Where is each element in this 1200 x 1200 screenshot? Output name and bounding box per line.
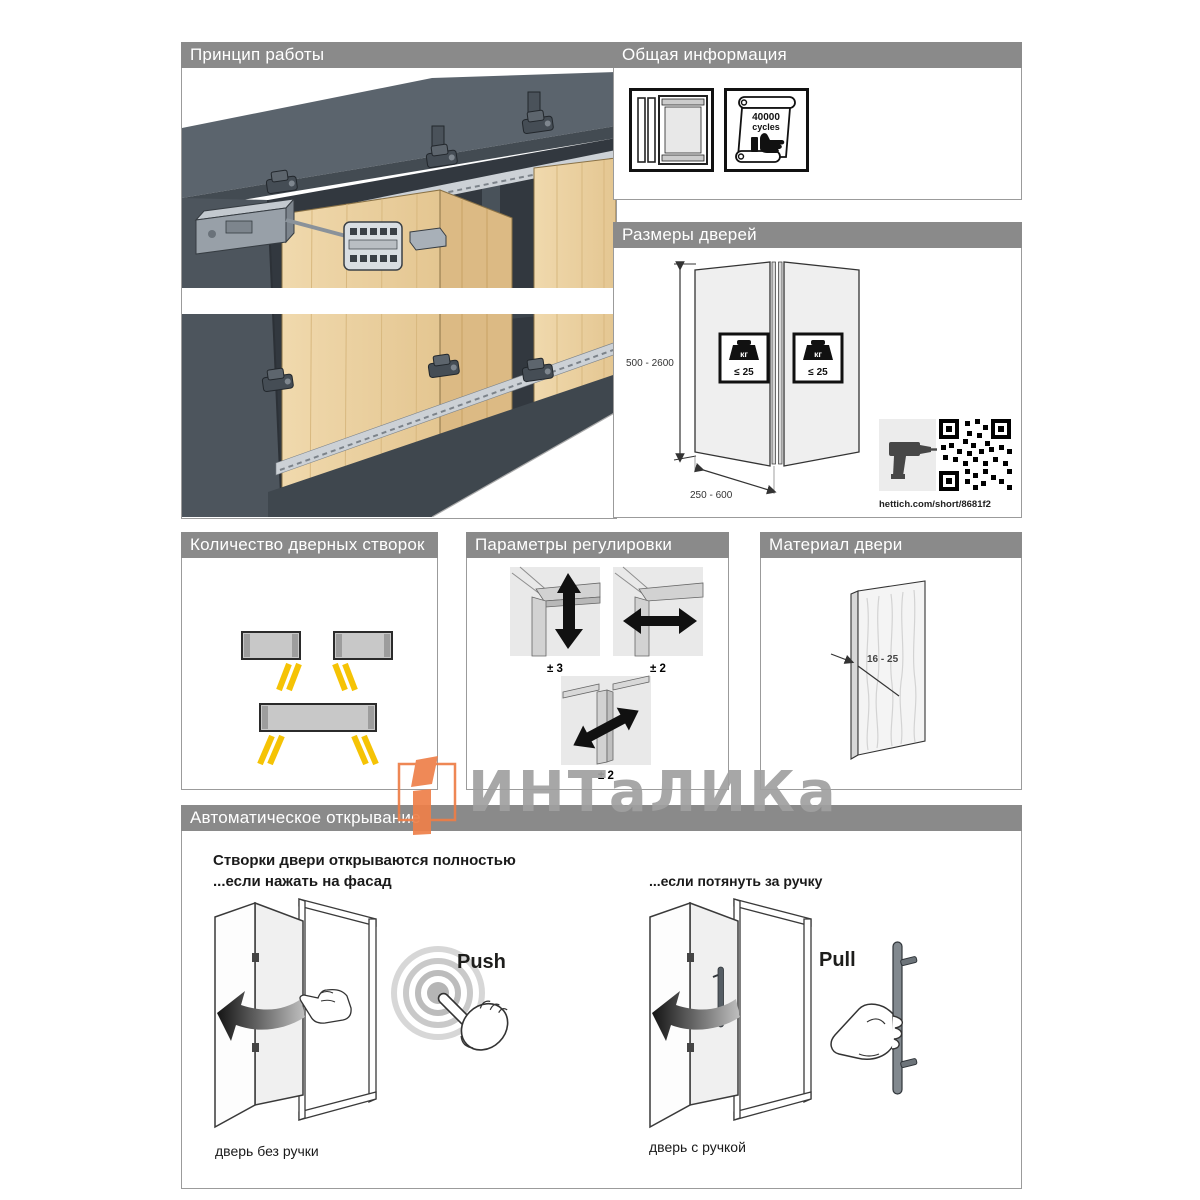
qr-code bbox=[937, 417, 1013, 493]
panel-leaves-title: Количество дверных створок bbox=[181, 532, 438, 558]
connector-icon bbox=[410, 228, 446, 250]
panel-material-title: Материал двери bbox=[760, 532, 1022, 558]
adjust-tilt-value: ± 2 bbox=[598, 770, 614, 782]
opening-headline-line1: Створки двери открываются полностью bbox=[213, 850, 516, 871]
panel-opening: Автоматическое открывание Створки двери … bbox=[181, 805, 1022, 1189]
touch-hand-icon bbox=[300, 990, 351, 1024]
door-dimensions-diagram: кг ≤ 25 кг ≤ 25 500 - 2600 bbox=[614, 248, 1021, 516]
door-thickness-range: 16 - 25 bbox=[867, 654, 899, 665]
push-caption: дверь без ручки bbox=[215, 1143, 319, 1159]
door-material-diagram: 16 - 25 bbox=[761, 558, 1021, 788]
adjust-horizontal-icon bbox=[613, 567, 703, 656]
mounting-plate-icon bbox=[344, 222, 402, 270]
panel-material: Материал двери 16 - 25 bbox=[760, 532, 1022, 790]
pull-label: Pull bbox=[819, 949, 856, 972]
panel-leaves: Количество дверных створок bbox=[181, 532, 438, 790]
pull-note: ...если потянуть за ручку bbox=[649, 873, 822, 889]
door-height-range: 500 - 2600 bbox=[626, 358, 674, 369]
door-width-range: 250 - 600 bbox=[690, 490, 733, 501]
opening-headline-line2: ...если нажать на фасад bbox=[213, 871, 516, 892]
svg-text:≤ 25: ≤ 25 bbox=[808, 367, 828, 378]
weight-limit-icon: кг ≤ 25 bbox=[720, 334, 768, 382]
drill-icon bbox=[879, 419, 939, 491]
panel-general: Общая информация bbox=[613, 42, 1022, 200]
adjustment-diagram: ± 3 ± 2 bbox=[467, 558, 728, 788]
adjust-tilt-icon bbox=[561, 676, 651, 765]
svg-text:кг: кг bbox=[814, 349, 822, 359]
panel-dimensions-title: Размеры дверей bbox=[613, 222, 1022, 248]
panel-adjustment-title: Параметры регулировки bbox=[466, 532, 729, 558]
panel-principle-title: Принцип работы bbox=[181, 42, 617, 68]
short-link: hettich.com/short/8681f2 bbox=[879, 499, 991, 510]
panel-dimensions: Размеры дверей кг ≤ bbox=[613, 222, 1022, 518]
panel-principle: Принцип работы bbox=[181, 42, 617, 519]
cabinet-principle-illustration bbox=[182, 68, 616, 517]
panel-general-title: Общая информация bbox=[613, 42, 1022, 68]
push-cabinet-illustration bbox=[209, 893, 394, 1138]
panel-opening-title: Автоматическое открывание bbox=[181, 805, 1022, 831]
datasheet-page: Принцип работы bbox=[0, 0, 1200, 1200]
pull-caption: дверь с ручкой bbox=[649, 1139, 746, 1155]
svg-text:кг: кг bbox=[740, 349, 748, 359]
svg-text:≤ 25: ≤ 25 bbox=[734, 367, 754, 378]
door-leaves-diagram bbox=[182, 558, 437, 788]
pull-hand-icon bbox=[831, 1004, 902, 1059]
adjust-vertical-value: ± 3 bbox=[547, 663, 563, 675]
opening-headline: Створки двери открываются полностью ...е… bbox=[213, 850, 516, 892]
push-label: Push bbox=[457, 951, 506, 974]
weight-limit-icon: кг ≤ 25 bbox=[794, 334, 842, 382]
panel-adjustment: Параметры регулировки ± 3 bbox=[466, 532, 729, 790]
folding-door-icon bbox=[629, 88, 714, 172]
adjust-horizontal-value: ± 2 bbox=[650, 663, 666, 675]
cycles-certificate-icon: 40000 cycles bbox=[724, 88, 809, 172]
cycles-unit: cycles bbox=[752, 122, 780, 132]
adjust-vertical-icon bbox=[510, 567, 600, 656]
